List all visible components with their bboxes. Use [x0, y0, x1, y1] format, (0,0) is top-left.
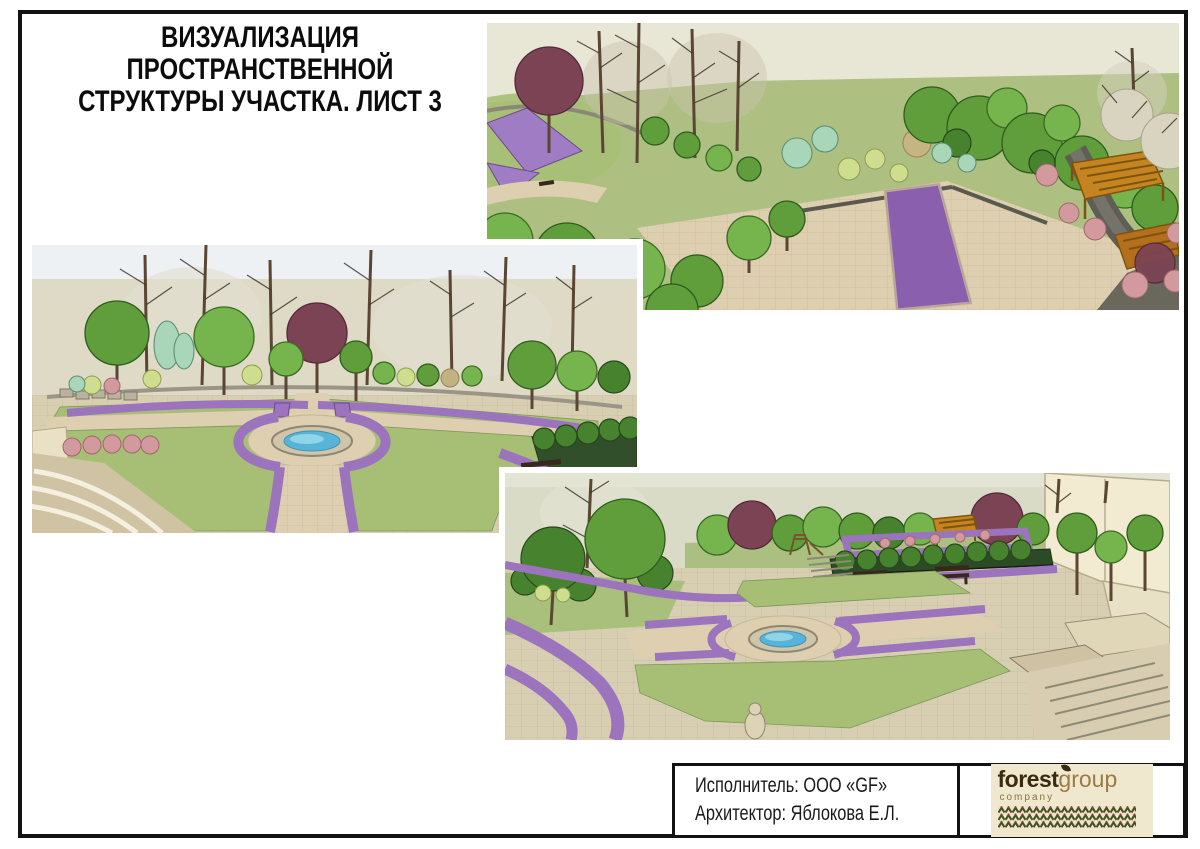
- render-parterre-view: [499, 467, 1176, 746]
- credits: Исполнитель: ООО «GF» Архитектор: Яблоко…: [675, 766, 957, 835]
- page-title: ВИЗУАЛИЗАЦИЯ ПРОСТРАНСТВЕННОЙ СТРУКТУРЫ …: [32, 22, 488, 118]
- logo-cell: forestgroup company: [957, 766, 1183, 835]
- fountain: [749, 626, 817, 652]
- parterre-view-illustration: [505, 473, 1170, 740]
- logo-pattern: [998, 806, 1136, 828]
- logo-word-forest: forest: [998, 766, 1059, 792]
- page-title-line1: ВИЗУАЛИЗАЦИЯ ПРОСТРАНСТВЕННОЙ: [32, 22, 488, 86]
- title-block: Исполнитель: ООО «GF» Архитектор: Яблоко…: [672, 763, 1186, 838]
- page-title-line2: СТРУКТУРЫ УЧАСТКА. ЛИСТ 3: [32, 86, 488, 118]
- architect-line: Архитектор: Яблокова Е.Л.: [695, 800, 899, 828]
- forest-group-logo: forestgroup company: [991, 764, 1153, 837]
- sheet: ВИЗУАЛИЗАЦИЯ ПРОСТРАНСТВЕННОЙ СТРУКТУРЫ …: [0, 0, 1200, 849]
- contractor-line: Исполнитель: ООО «GF»: [695, 772, 899, 800]
- fountain: [272, 426, 352, 456]
- logo-wordmark: forestgroup: [998, 767, 1148, 795]
